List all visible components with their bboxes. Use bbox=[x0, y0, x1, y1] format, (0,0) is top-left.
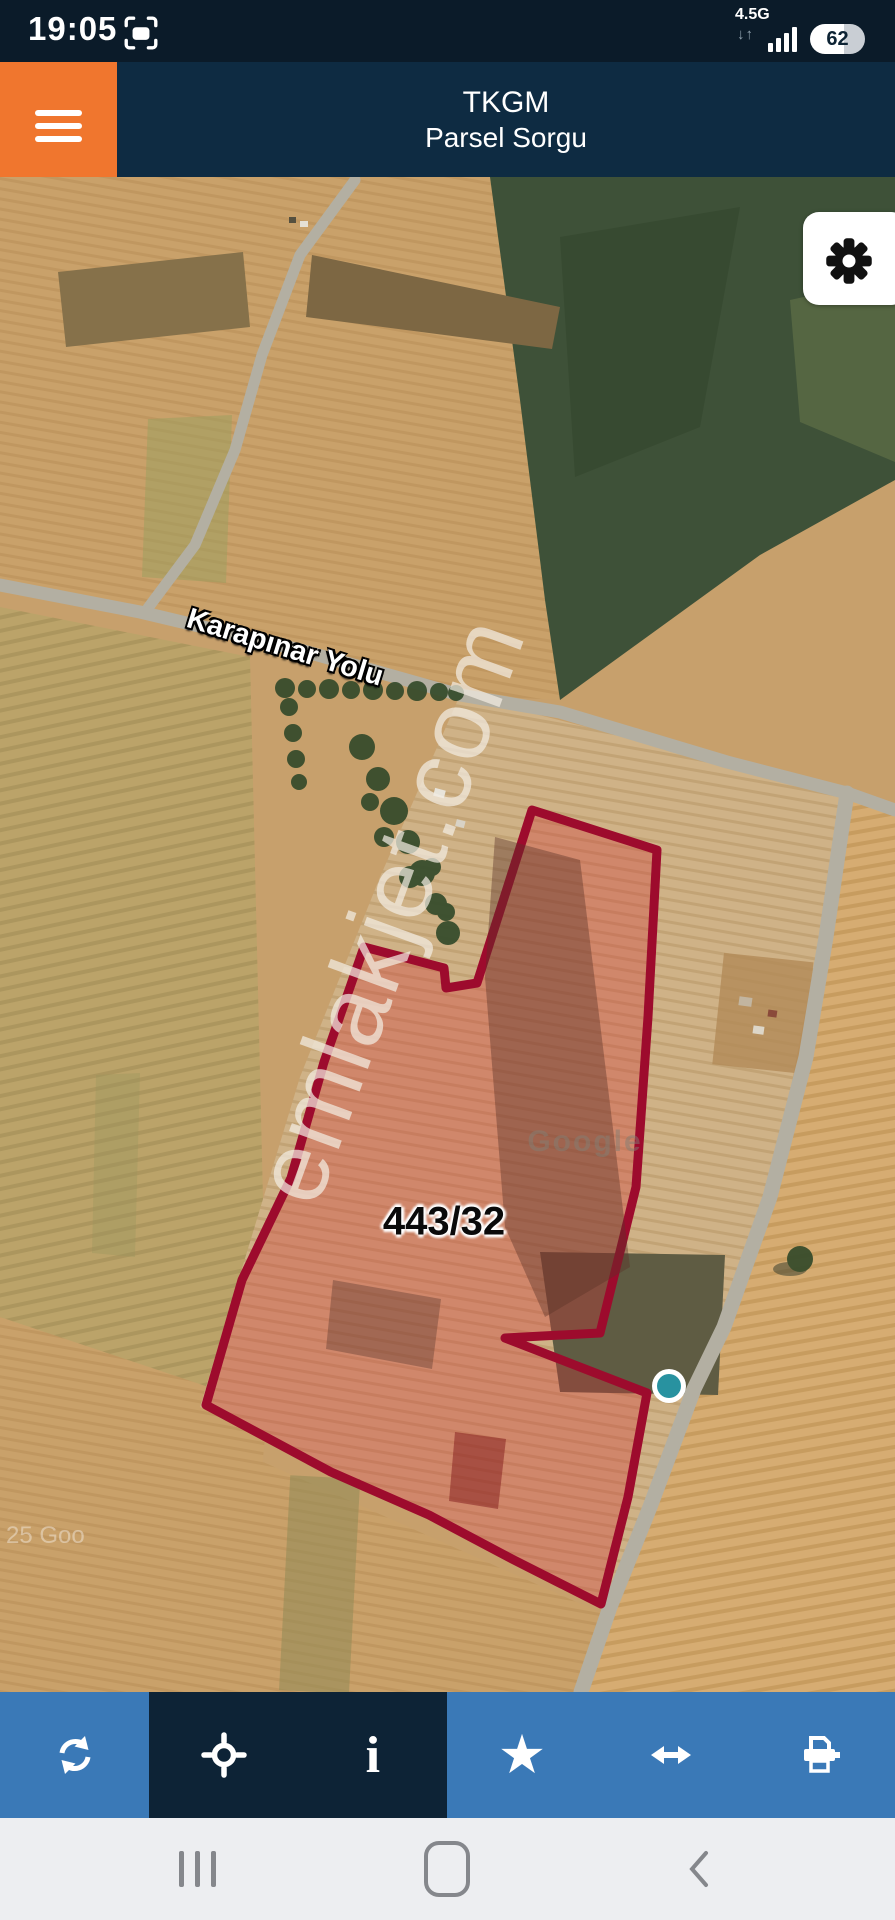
satellite-map[interactable]: emlakjet.com Google 25 Goo Karapınar Yol… bbox=[0, 177, 895, 1692]
favorite-button[interactable]: ★ bbox=[447, 1692, 596, 1818]
signal-strength-icon bbox=[768, 26, 802, 52]
measure-button[interactable] bbox=[597, 1692, 746, 1818]
recents-icon bbox=[173, 1851, 221, 1887]
refresh-icon bbox=[52, 1732, 98, 1778]
network-type-label: 4.5G bbox=[735, 6, 770, 24]
star-icon: ★ bbox=[501, 1727, 544, 1783]
home-button[interactable] bbox=[387, 1818, 507, 1920]
refresh-button[interactable] bbox=[0, 1692, 149, 1818]
screenshot-icon bbox=[122, 14, 160, 57]
android-nav-bar bbox=[0, 1818, 895, 1920]
crosshair-icon bbox=[201, 1732, 247, 1778]
printer-icon bbox=[797, 1732, 843, 1778]
location-marker[interactable] bbox=[652, 1369, 686, 1403]
status-clock: 19:05 bbox=[28, 10, 117, 48]
map-toolbar: i ★ bbox=[0, 1692, 895, 1818]
data-arrows-icon: ↓↑ bbox=[737, 26, 754, 43]
back-chevron-icon bbox=[684, 1848, 714, 1890]
satellite-map-layer bbox=[0, 177, 895, 1692]
home-icon bbox=[424, 1841, 470, 1897]
resize-arrow-icon bbox=[648, 1732, 694, 1778]
print-button[interactable] bbox=[746, 1692, 895, 1818]
app-header: TKGM Parsel Sorgu bbox=[0, 62, 895, 177]
copyright-fragment: 25 Goo bbox=[6, 1522, 85, 1550]
info-button[interactable]: i bbox=[298, 1692, 447, 1818]
app-subtitle: Parsel Sorgu bbox=[425, 121, 587, 155]
recents-button[interactable] bbox=[137, 1818, 257, 1920]
status-bar: 19:05 4.5G ↓↑ 62 bbox=[0, 0, 895, 62]
page-title: TKGM Parsel Sorgu bbox=[117, 62, 895, 177]
app-title: TKGM bbox=[463, 85, 550, 121]
imagery-watermark: Google bbox=[527, 1125, 642, 1159]
parcel-number-label: 443/32 bbox=[383, 1200, 505, 1245]
settings-button[interactable] bbox=[803, 212, 895, 305]
back-button[interactable] bbox=[639, 1818, 759, 1920]
menu-button[interactable] bbox=[0, 62, 117, 177]
phone-screen: { "status_bar": { "time": "19:05", "netw… bbox=[0, 0, 895, 1920]
locate-button[interactable] bbox=[149, 1692, 298, 1818]
gear-icon bbox=[823, 235, 875, 287]
info-icon: i bbox=[366, 1726, 380, 1785]
location-marker-dot bbox=[657, 1374, 681, 1398]
battery-indicator: 62 bbox=[810, 24, 865, 54]
